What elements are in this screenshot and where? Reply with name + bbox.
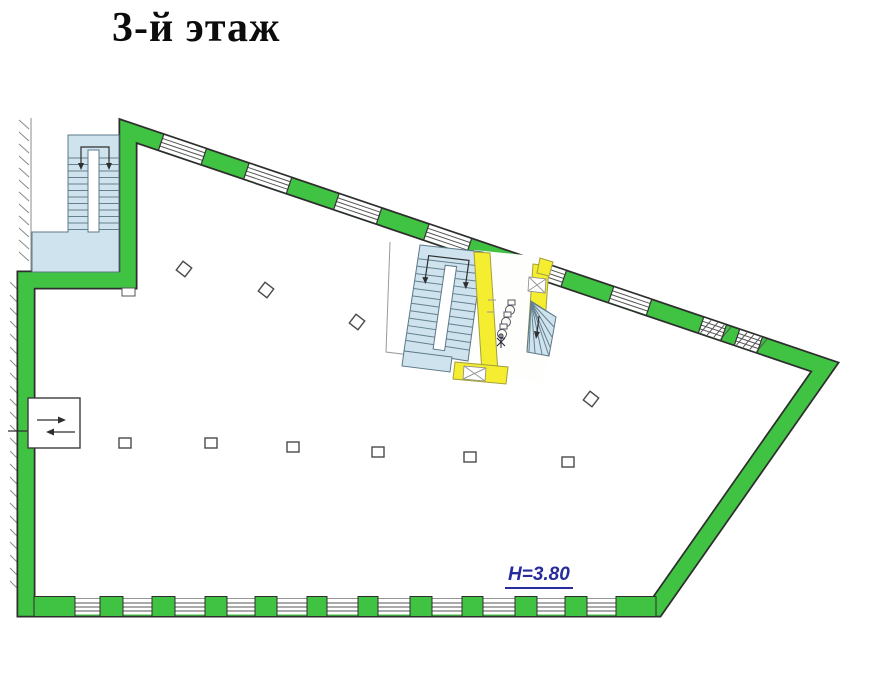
wall-pier <box>410 597 432 617</box>
wall-pier <box>358 597 378 617</box>
perimeter-wall <box>26 131 825 608</box>
central-stair-core <box>386 242 556 384</box>
column-marker <box>258 282 273 297</box>
ceiling-height-label: H=3.80 <box>505 564 573 589</box>
stairwell-top-left <box>32 135 119 272</box>
wall-pier <box>34 597 75 617</box>
column-marker <box>464 452 476 462</box>
door-opening <box>463 366 486 381</box>
wall-pier <box>100 597 123 617</box>
column-marker <box>287 442 299 452</box>
toilet-tank <box>500 324 507 329</box>
door-marker <box>122 288 135 296</box>
stair-divider-wall <box>88 150 99 232</box>
wall-pier <box>152 597 175 617</box>
floor-plan-page: 3-й этаж <box>0 0 876 687</box>
wall-pier <box>462 597 483 617</box>
door-opening <box>528 277 546 293</box>
column-marker <box>372 447 384 457</box>
floor-plan-drawing <box>0 0 876 687</box>
wall-pier <box>255 597 277 617</box>
column-marker <box>349 314 364 329</box>
wall-pier <box>307 597 327 617</box>
wall-pier <box>565 597 587 617</box>
toilet-tank <box>508 300 515 305</box>
column-marker <box>562 457 574 467</box>
toilet-tank <box>504 312 511 317</box>
bottom-wall-windows <box>34 597 656 617</box>
column-marker <box>176 261 191 276</box>
wall-pier <box>515 597 537 617</box>
column-marker <box>205 438 217 448</box>
column-marker <box>119 438 131 448</box>
wall-pier <box>205 597 227 617</box>
column-marker <box>583 391 598 406</box>
wall-pier <box>616 597 656 617</box>
